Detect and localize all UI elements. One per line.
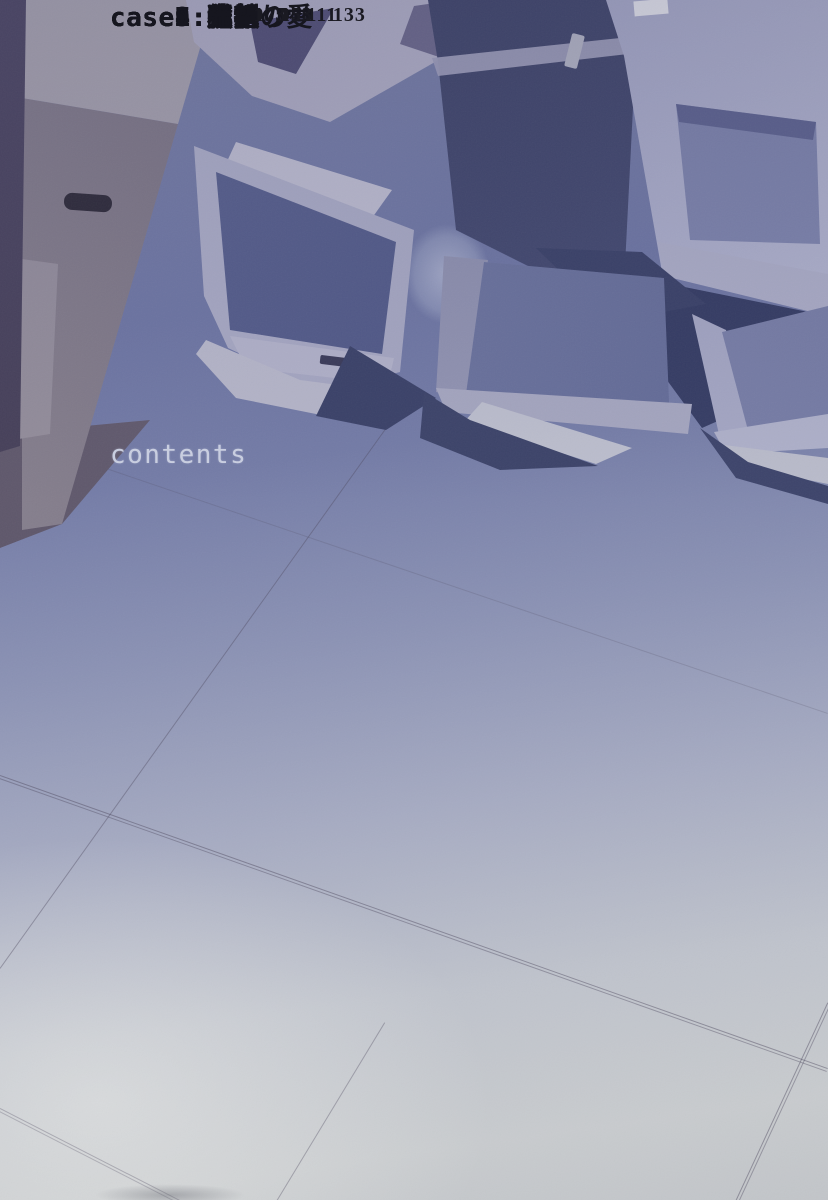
toc-page-number: 133 (333, 4, 366, 27)
floor-seam-line (0, 432, 828, 714)
toc-page-number: 173 (253, 4, 286, 27)
box-handle-slot (63, 192, 112, 212)
floor-smudge (95, 1184, 245, 1200)
toc-entry-label: case9:光 (110, 0, 233, 34)
floor-seam-line (736, 1003, 828, 1200)
toc-entry-case9: case9:光 173 (110, 0, 286, 30)
floor-seam-line (277, 1022, 386, 1200)
page-title: contents (110, 440, 247, 470)
floor-seam-line (0, 775, 828, 1069)
manga-contents-page: contents case1:噂 005 case2:選択 029 case3:… (0, 0, 828, 1200)
